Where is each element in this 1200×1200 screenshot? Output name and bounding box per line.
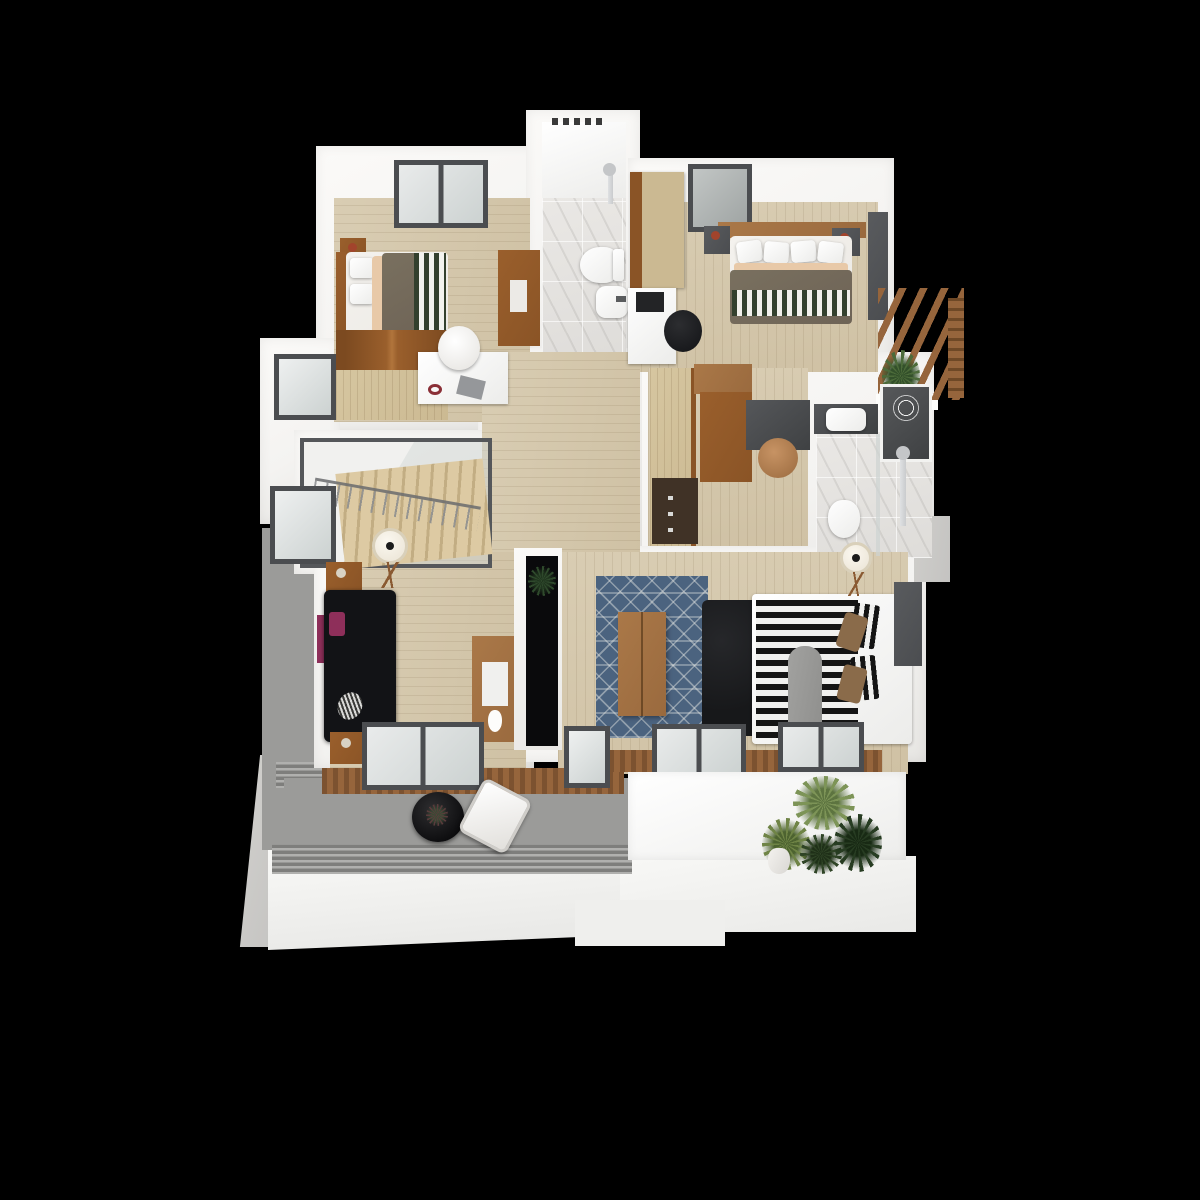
closet-counter-top [694,364,752,394]
lr-floor-lamp [372,528,408,564]
bath1-washbasin [596,286,628,318]
b2-office-chair [664,310,702,352]
b1-pillow-1 [350,258,374,278]
b2-pillow-2 [763,241,790,264]
terrace-fern-plant [834,814,882,872]
balcony-table-plant [426,804,448,826]
bath2-glass-partition [876,434,880,556]
floor-plan-stage [0,0,1200,1200]
terrace-white-vase [768,848,790,874]
lr-sideboard-door [482,662,508,706]
bath1-toilet-tank [613,249,624,281]
b1-dresser-deco [510,280,527,312]
b1-nightstand-lamp [348,243,357,252]
bath2-shower-head [896,446,910,460]
b1-pillow-2 [350,284,374,304]
b3-floor-lamp [840,542,872,574]
b2-pillow-1 [736,239,764,263]
b3-window-3 [778,722,864,772]
facade-step [575,900,725,946]
bath2-mandala-mat [889,391,923,425]
entry-window-1 [274,354,336,420]
b2-pillow-4 [817,241,844,265]
b3-window-2 [652,724,746,778]
closet-orange [700,392,752,482]
b2-lamp-left [711,231,720,240]
b1-window [394,160,488,228]
b2-nightstand-left [704,226,730,254]
b3-lamp-legs [846,572,866,596]
lr-sideboard-vase [488,710,502,732]
b2-pillow-3 [790,240,817,263]
bath2-toilet [828,500,860,538]
closet-drawers [652,478,698,544]
pergola-edge-beam [948,298,964,398]
b3-window-1 [564,726,610,788]
lr-side-lamp-top [336,568,346,578]
bath1-towel-rail [552,118,604,125]
closet-drawer-knobs [668,492,673,532]
b2-wardrobe [630,172,684,288]
lr-lamp-legs [378,562,402,588]
b1-headphones [428,384,442,395]
b2-striped-throw [732,290,850,316]
b3-bench [702,600,758,736]
bath2-basin [826,408,866,431]
b2-desk-printer [636,292,664,312]
b1-shell-chair [438,326,480,370]
study-wood-chair [758,438,798,478]
tv-niche-plant [528,566,556,596]
bath2-shower-column [900,450,906,526]
b3-table-seam [641,612,643,716]
balcony-louvered-railing [272,844,632,874]
entry-window-2 [270,486,336,564]
b3-outdoor-dark-unit [894,582,922,666]
bath1-faucet [616,296,626,302]
shower-zone-bathroom-top [542,122,626,200]
bath1-shower-head [603,163,616,176]
lr-cushion-magenta [329,612,345,636]
lr-side-lamp-bottom [341,738,351,748]
lr-sliding-door [362,722,484,790]
